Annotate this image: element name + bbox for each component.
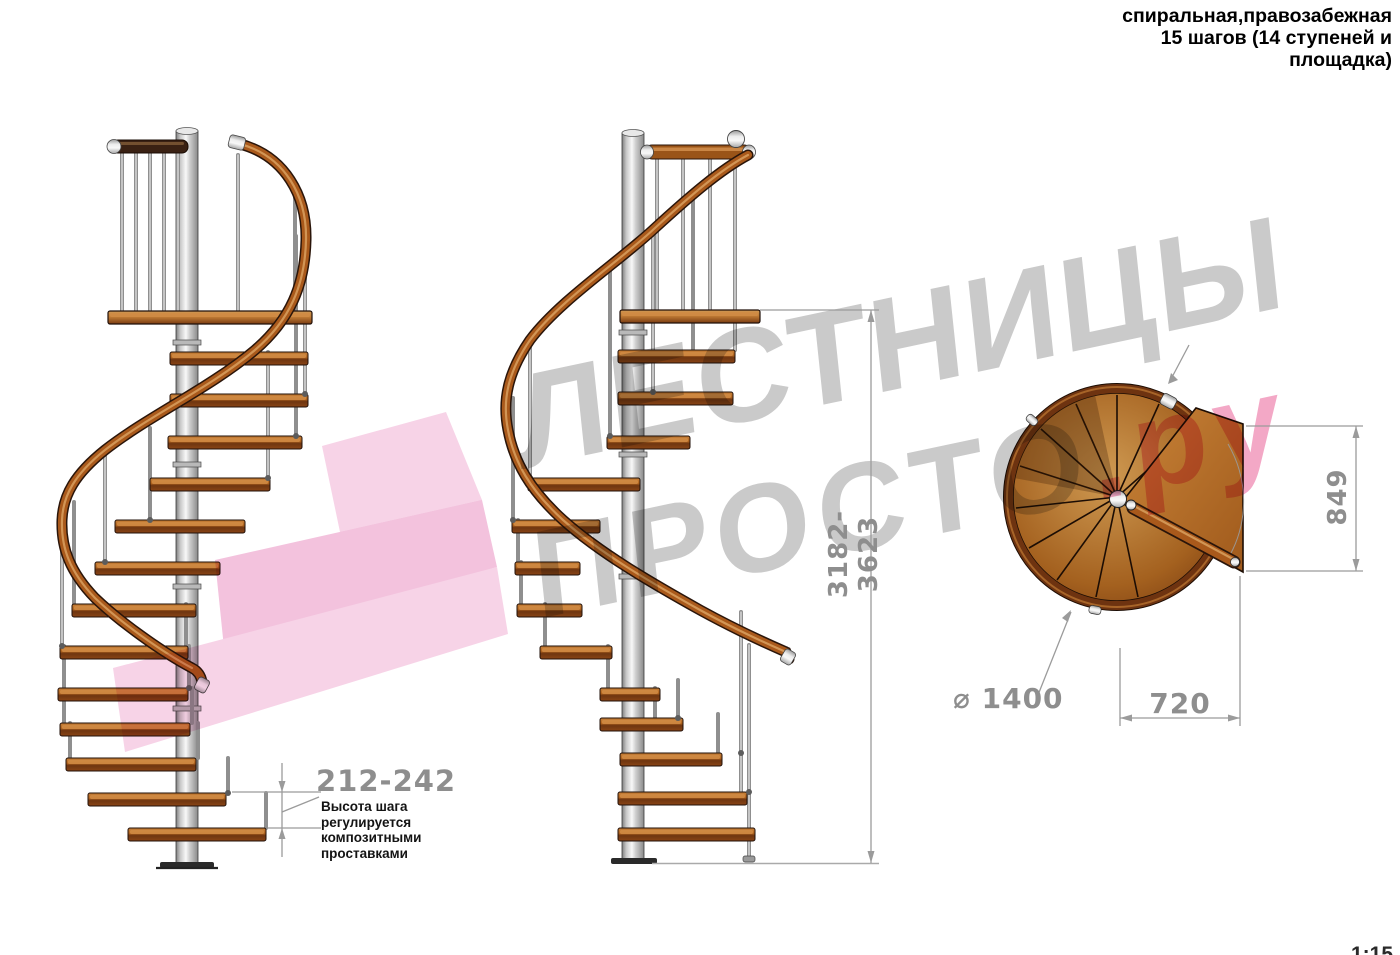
dimension-platform-side: 849 bbox=[1323, 457, 1353, 537]
dimension-lines bbox=[0, 0, 1400, 955]
dimension-total-height: 3182-3623 bbox=[824, 484, 884, 624]
dimension-step-height: 212-242 bbox=[316, 764, 456, 798]
drawing-title: спиральная,правозабежная 15 шагов (14 ст… bbox=[972, 5, 1392, 71]
dimension-platform-width: 720 bbox=[1140, 687, 1220, 720]
step-height-note: Высота шага регулируется композитными пр… bbox=[321, 799, 421, 861]
dimension-diameter: ⌀ 1400 bbox=[953, 682, 1064, 715]
scale-label: 1:15 bbox=[1351, 943, 1393, 955]
drawing-page: .rod{stroke:#8f8f8f;stroke-width:4;strok… bbox=[0, 0, 1400, 955]
